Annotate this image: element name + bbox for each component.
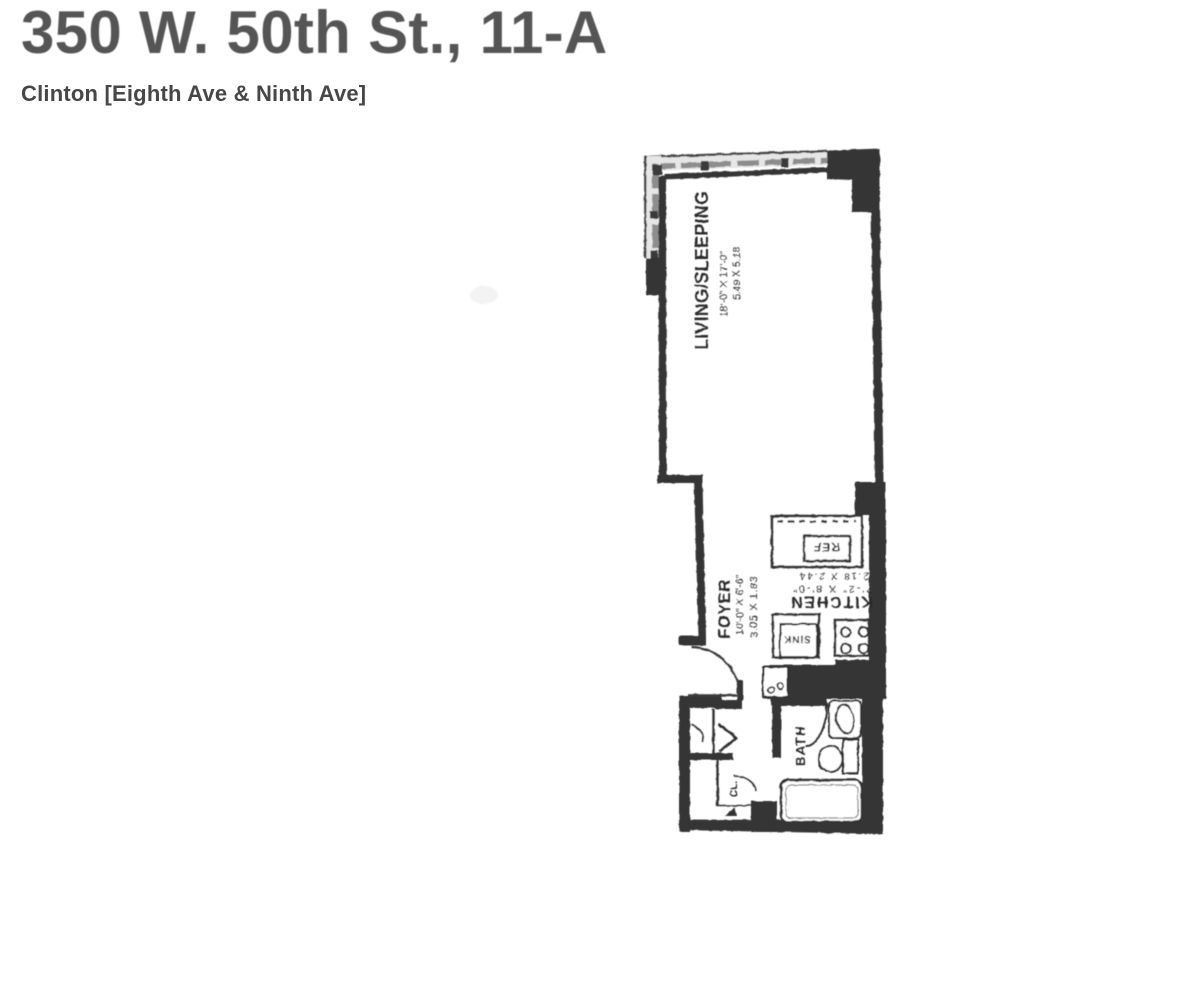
svg-text:7'-2" X 8'-0": 7'-2" X 8'-0" bbox=[791, 583, 872, 594]
svg-text:3.05 X 1.83: 3.05 X 1.83 bbox=[748, 575, 760, 638]
svg-text:CL.: CL. bbox=[729, 781, 740, 797]
svg-text:FOYER: FOYER bbox=[715, 579, 734, 639]
svg-text:18'-0" X 17'-0": 18'-0" X 17'-0" bbox=[719, 251, 730, 317]
svg-text:5.49 X 5.18: 5.49 X 5.18 bbox=[732, 246, 743, 300]
svg-text:10'-0" X 6'-6": 10'-0" X 6'-6" bbox=[734, 574, 746, 635]
svg-text:REF: REF bbox=[813, 540, 840, 554]
svg-text:2.18 X 2.44: 2.18 X 2.44 bbox=[798, 570, 869, 581]
svg-text:KITCHEN: KITCHEN bbox=[789, 593, 873, 610]
svg-text:SINK: SINK bbox=[783, 633, 811, 644]
svg-text:LIVING/SLEEPING: LIVING/SLEEPING bbox=[692, 191, 712, 350]
svg-text:BATH: BATH bbox=[793, 725, 808, 766]
